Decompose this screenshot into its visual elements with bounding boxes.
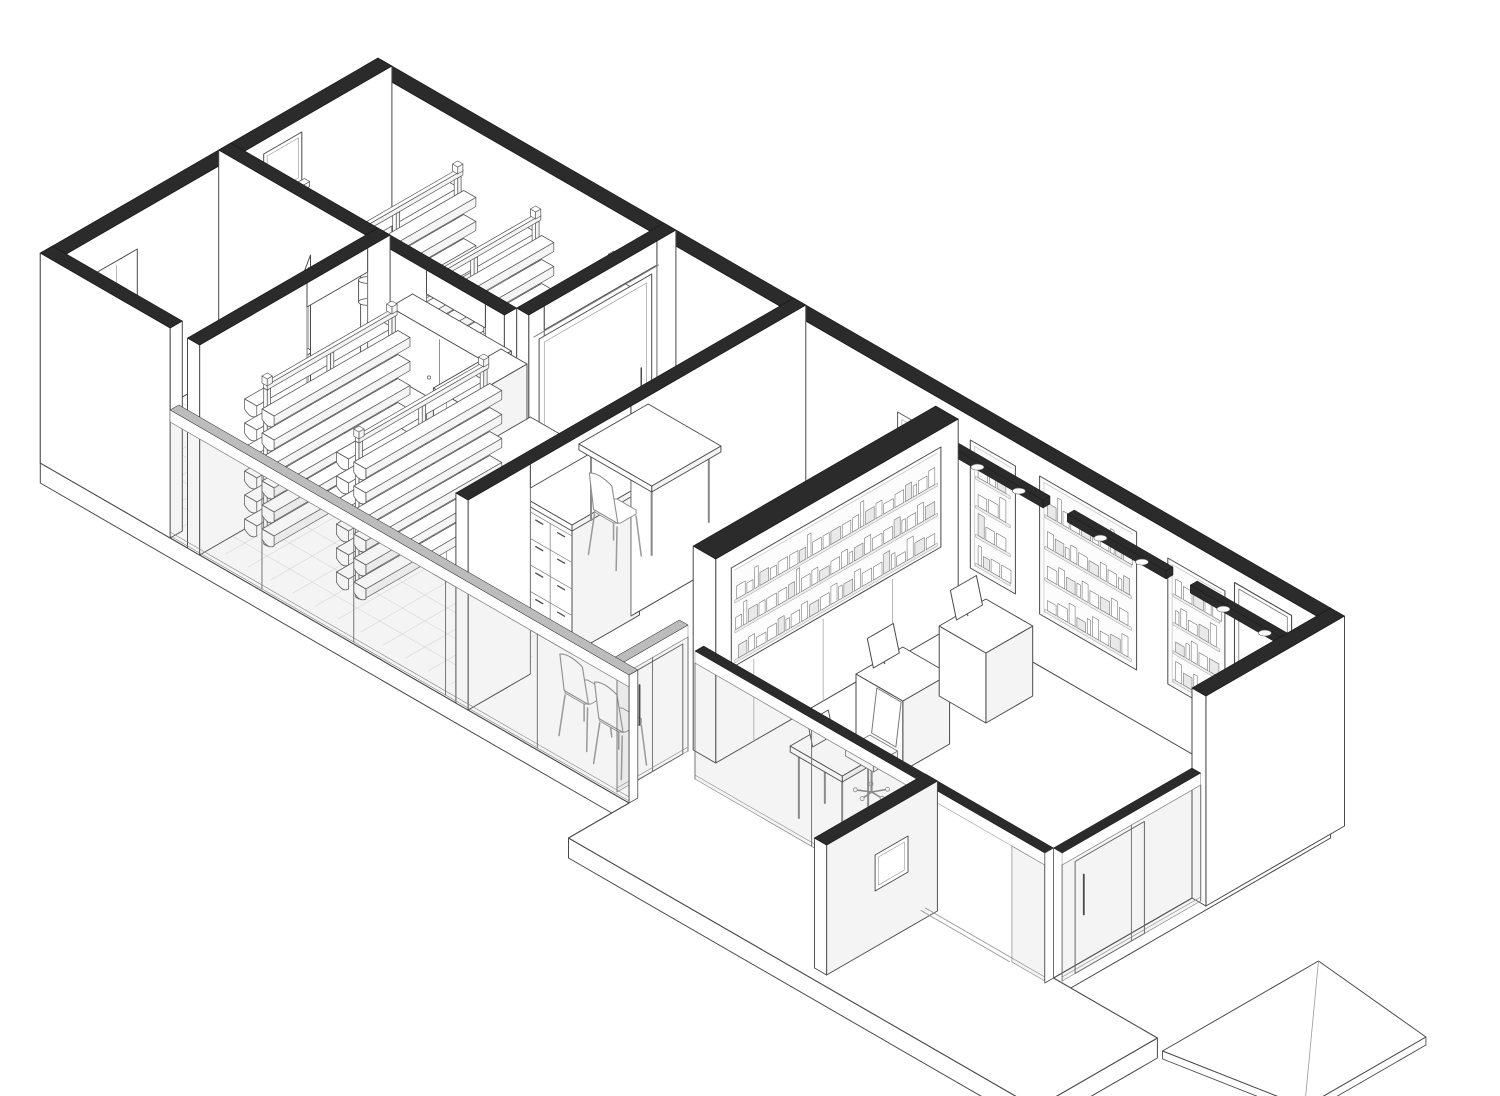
entry-ramp	[1163, 961, 1426, 1096]
pharmacy-axonometric-drawing	[0, 0, 1500, 1096]
drawing-canvas	[0, 0, 1500, 1096]
